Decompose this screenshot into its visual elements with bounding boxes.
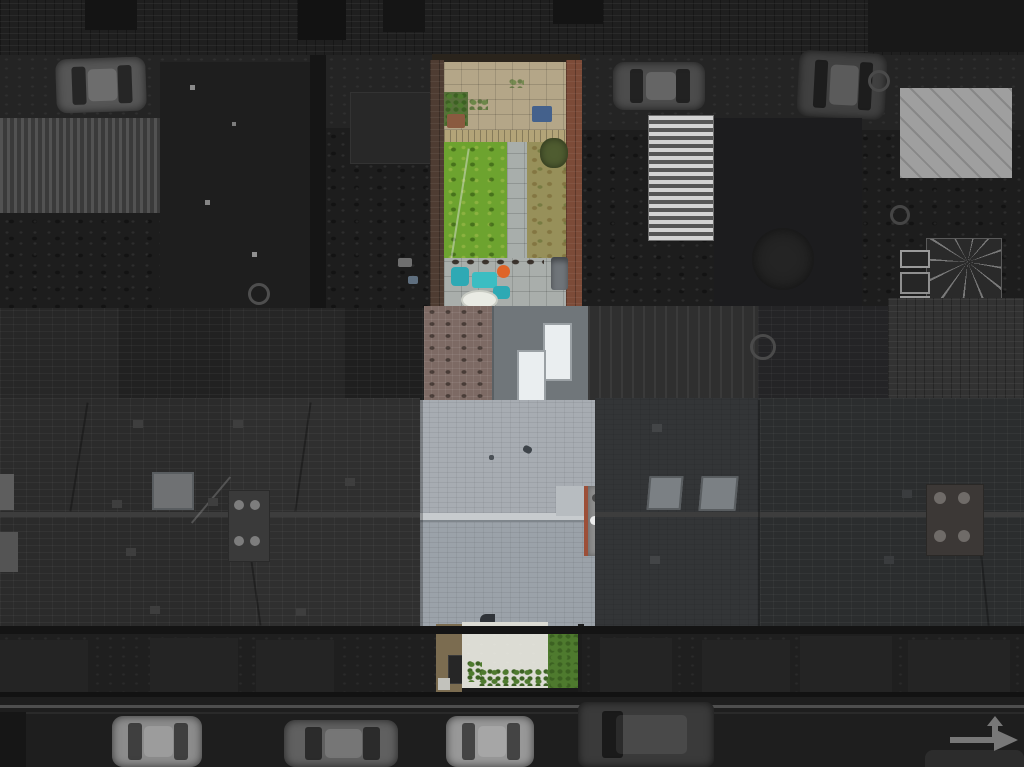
car-window [117, 64, 132, 103]
curb-line [0, 705, 1024, 708]
parked-car-street [112, 716, 202, 767]
roof-vent [150, 606, 160, 614]
roof-dark-mark [489, 455, 494, 460]
bay-front [0, 640, 88, 696]
yard-barrel [868, 70, 890, 92]
road-arrow-marking [948, 712, 1024, 748]
car-window [507, 723, 520, 760]
yard-junk-speck [408, 276, 418, 284]
road-arrow-bar [950, 737, 994, 743]
car-roof [325, 729, 362, 757]
bay-front [702, 640, 790, 696]
yard-junk-speck [190, 85, 195, 90]
car-window [128, 723, 142, 760]
block-paved-terrace [424, 306, 492, 404]
roof-window-gray [152, 472, 194, 510]
garden-bush-olive [540, 138, 568, 168]
chimney-pot [958, 530, 970, 542]
roof-window-gray [647, 476, 684, 510]
chimney-pot [250, 536, 260, 546]
main-roof-edge-shadow [420, 400, 423, 628]
bay-front [150, 638, 238, 696]
car-window [305, 727, 322, 761]
rooflight-white [543, 323, 572, 381]
corner-shadow [0, 712, 26, 767]
car-roof [646, 72, 675, 101]
yard-junk-speck [252, 252, 257, 257]
car-roof [478, 726, 506, 757]
striped-extension-roof [588, 306, 758, 402]
eaves-line [0, 626, 1024, 634]
car-window [676, 69, 690, 104]
yard-barrel [248, 283, 270, 305]
aerial-photo-scene [0, 0, 1024, 767]
garden-shed [350, 92, 434, 164]
road-arrow-head-up [987, 716, 1003, 726]
patio-table-teal [472, 272, 497, 288]
blue-storage-box [532, 106, 552, 122]
bay-front [600, 638, 672, 696]
roof-ridge-left [0, 512, 420, 517]
wall-recess [85, 0, 137, 30]
patio-weeds [468, 98, 488, 110]
roof-vent [208, 498, 218, 506]
car-window [630, 69, 644, 104]
wall-block-right [868, 0, 1024, 52]
yard-junk-speck [232, 122, 236, 126]
garden-bush-gray [752, 228, 814, 290]
wall-recess [298, 0, 346, 40]
roof-vent [652, 424, 662, 432]
bay-front [908, 640, 1010, 696]
roof-vent [112, 500, 122, 508]
roof-window-edge [0, 474, 14, 510]
rear-extension-roof [344, 308, 424, 402]
parked-car-street-partial [925, 750, 1024, 767]
car-window [174, 723, 188, 760]
rear-extension-roof [0, 308, 118, 402]
chimney-pot [234, 536, 244, 546]
chimney-pot [934, 530, 946, 542]
rear-extension-roof [758, 306, 888, 402]
garden-wall-left [430, 60, 444, 310]
chimney-pot [234, 500, 244, 510]
parked-car-alley-mid [613, 62, 705, 110]
rear-extension-roof [230, 308, 344, 402]
greenhouse-ribbed-roof [648, 115, 714, 241]
car-roof [829, 65, 859, 106]
roof-vent [345, 478, 355, 486]
car-window [72, 66, 87, 105]
chimney-pot [958, 492, 970, 504]
roof-vent [902, 490, 912, 498]
plant-pot-orange [497, 265, 510, 278]
bay-front [800, 636, 892, 694]
yard-junk-speck [398, 258, 412, 267]
car-window [813, 60, 829, 108]
car-roof [144, 726, 173, 757]
roof-vent [133, 420, 143, 428]
front-shrub-fringe [478, 668, 548, 686]
chimney-pot [250, 500, 260, 510]
roof-window-edge [0, 532, 18, 572]
front-gate-light [438, 678, 450, 690]
bay-front [256, 640, 334, 696]
flat-roof-seam [492, 306, 494, 404]
roof-vent-circle [750, 334, 776, 360]
corrugated-garage-roof [0, 118, 170, 213]
yard-barrel [890, 205, 910, 225]
front-shrub-border [548, 626, 578, 688]
garden-centre-path [507, 142, 527, 259]
wall-recess [383, 0, 425, 32]
patio-chair-teal [451, 267, 469, 286]
chimney-pot [934, 492, 946, 504]
planter-pot-brown [447, 114, 465, 128]
garden-wall-right [566, 60, 582, 310]
window-frame-light [900, 272, 930, 294]
parked-car-alley-left [55, 56, 147, 113]
parked-car-street [284, 720, 398, 767]
bicycle-gray [551, 257, 568, 290]
roof-vent [126, 548, 136, 556]
roof-window-gray [698, 476, 738, 511]
patio-weeds [508, 78, 524, 88]
van-roof [616, 715, 687, 754]
cluttered-yard [160, 62, 310, 310]
main-roof-lower-slope [420, 522, 596, 628]
car-window [462, 723, 475, 760]
road-arrow-branch-stem [992, 726, 998, 738]
roof-access-panel [556, 486, 586, 516]
parked-car-street [446, 716, 534, 767]
white-garage-roof [900, 88, 1012, 178]
car-roof [88, 68, 118, 101]
yard-junk-speck [205, 200, 210, 205]
car-window [363, 727, 380, 761]
rear-extension-roof [118, 308, 230, 402]
roof-vent [884, 556, 894, 564]
rooflight-white [517, 350, 546, 406]
roof-vent [650, 556, 660, 564]
wall-recess [553, 0, 603, 24]
yard-passage [310, 55, 326, 310]
gutter-line [0, 712, 1024, 714]
roof-vent [233, 420, 243, 428]
brick-house-corner [888, 298, 1024, 402]
roof-party-seam [758, 400, 760, 628]
window-frame-light [900, 250, 930, 268]
parked-van-street [578, 702, 714, 767]
roof-vent [296, 608, 306, 616]
